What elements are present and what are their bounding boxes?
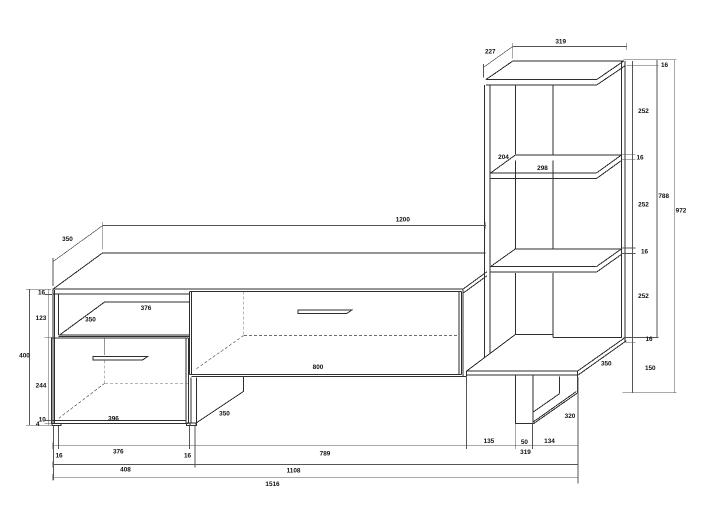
svg-text:1200: 1200 — [396, 217, 411, 224]
svg-text:1108: 1108 — [287, 468, 301, 475]
svg-text:400: 400 — [19, 353, 30, 360]
svg-text:298: 298 — [537, 165, 548, 172]
svg-text:972: 972 — [676, 207, 687, 214]
svg-text:16: 16 — [661, 62, 669, 69]
svg-text:10: 10 — [39, 417, 47, 424]
svg-text:396: 396 — [108, 415, 119, 422]
svg-text:788: 788 — [658, 193, 669, 200]
svg-text:16: 16 — [645, 336, 653, 343]
svg-text:204: 204 — [498, 154, 509, 161]
svg-text:50: 50 — [521, 439, 529, 446]
svg-text:408: 408 — [120, 467, 131, 474]
svg-text:123: 123 — [36, 315, 47, 322]
svg-text:16: 16 — [641, 248, 649, 255]
svg-text:800: 800 — [313, 364, 324, 371]
svg-text:789: 789 — [320, 450, 331, 457]
svg-text:319: 319 — [520, 449, 531, 456]
svg-text:4: 4 — [36, 421, 40, 428]
svg-text:319: 319 — [555, 39, 566, 46]
svg-text:376: 376 — [113, 449, 124, 456]
svg-text:1516: 1516 — [265, 481, 280, 488]
svg-text:227: 227 — [485, 49, 496, 56]
svg-text:350: 350 — [62, 236, 73, 243]
svg-text:135: 135 — [484, 438, 495, 445]
svg-text:350: 350 — [85, 316, 96, 323]
svg-text:376: 376 — [141, 305, 152, 312]
svg-text:134: 134 — [544, 438, 555, 445]
svg-text:16: 16 — [636, 155, 644, 162]
svg-text:244: 244 — [36, 382, 47, 389]
svg-text:150: 150 — [645, 365, 656, 372]
svg-text:16: 16 — [184, 452, 192, 459]
svg-text:16: 16 — [55, 452, 63, 459]
svg-text:252: 252 — [638, 202, 649, 209]
svg-text:252: 252 — [638, 293, 649, 300]
svg-text:16: 16 — [38, 290, 46, 297]
svg-text:320: 320 — [565, 413, 576, 420]
svg-text:350: 350 — [219, 411, 230, 418]
svg-text:252: 252 — [638, 108, 649, 115]
svg-text:350: 350 — [601, 360, 612, 367]
